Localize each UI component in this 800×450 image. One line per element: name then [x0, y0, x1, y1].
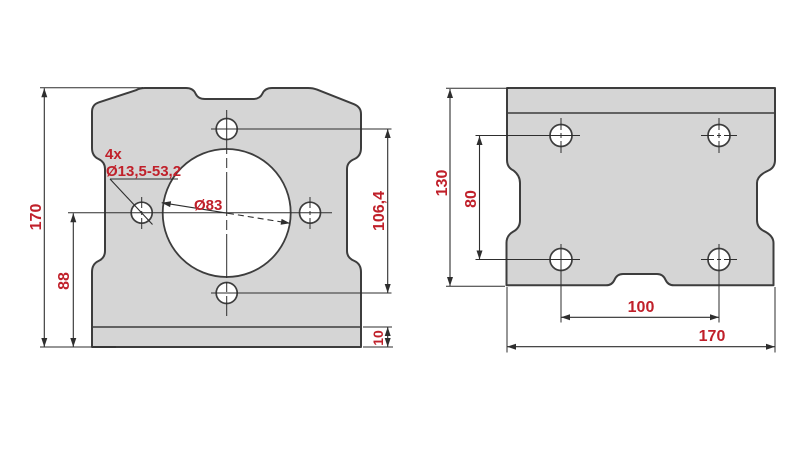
side-view-outline — [507, 88, 776, 285]
arrow-left-icon — [507, 344, 516, 350]
dim-overall-height: 170 — [28, 88, 47, 347]
arrow-right-icon — [766, 344, 775, 350]
dim-side-hole-height: 88 — [56, 213, 76, 347]
front-view: 170 88 106,4 10 4x Ø13,5-53,2 — [28, 88, 393, 347]
arrow-right-icon — [710, 314, 719, 320]
dim-overall-depth-label: 130 — [434, 170, 451, 197]
dim-overall-width-label: 170 — [699, 328, 726, 345]
arrow-down-icon — [385, 284, 391, 293]
dim-vertical-hole-pitch-label: 106,4 — [371, 191, 388, 231]
motor-bracket-drawing: 170 88 106,4 10 4x Ø13,5-53,2 — [0, 0, 800, 450]
arrow-up-icon — [385, 129, 391, 138]
dim-overall-height-label: 170 — [28, 204, 45, 231]
hole-spec-label: Ø13,5-53,2 — [106, 163, 181, 180]
bore-diameter-label: Ø83 — [194, 197, 222, 214]
dim-hole-column-pitch: 100 — [561, 299, 719, 320]
dim-base-strip: 10 — [370, 327, 391, 347]
dim-side-hole-height-label: 88 — [56, 272, 73, 290]
arrow-up-icon — [41, 88, 47, 97]
arrow-down-icon — [41, 338, 47, 347]
arrow-down-icon — [477, 251, 483, 260]
dim-hole-row-pitch-label: 80 — [463, 190, 480, 208]
dim-overall-depth: 130 — [434, 89, 453, 286]
hole-count-label: 4x — [105, 146, 122, 163]
arrow-down-icon — [70, 338, 76, 347]
dim-vertical-hole-pitch: 106,4 — [371, 129, 391, 293]
side-view: 130 80 100 170 — [434, 88, 775, 353]
technical-drawing-canvas: 170 88 106,4 10 4x Ø13,5-53,2 — [0, 0, 800, 450]
dim-hole-row-pitch: 80 — [463, 136, 483, 260]
arrow-down-icon — [447, 277, 453, 286]
dim-base-strip-label: 10 — [370, 330, 386, 346]
arrow-up-icon — [70, 213, 76, 222]
dim-overall-width: 170 — [507, 328, 775, 350]
dim-hole-column-pitch-label: 100 — [628, 299, 655, 316]
arrow-up-icon — [447, 89, 453, 98]
arrow-up-icon — [477, 136, 483, 145]
arrow-left-icon — [561, 314, 570, 320]
